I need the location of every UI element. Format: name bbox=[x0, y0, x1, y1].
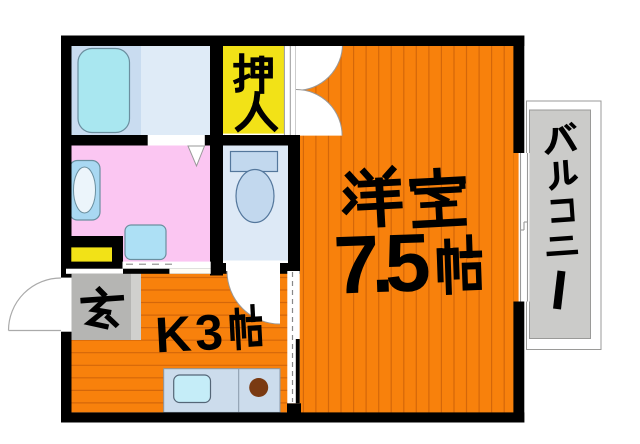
svg-text:7.5: 7.5 bbox=[332, 217, 432, 311]
svg-text:K3: K3 bbox=[154, 304, 225, 363]
